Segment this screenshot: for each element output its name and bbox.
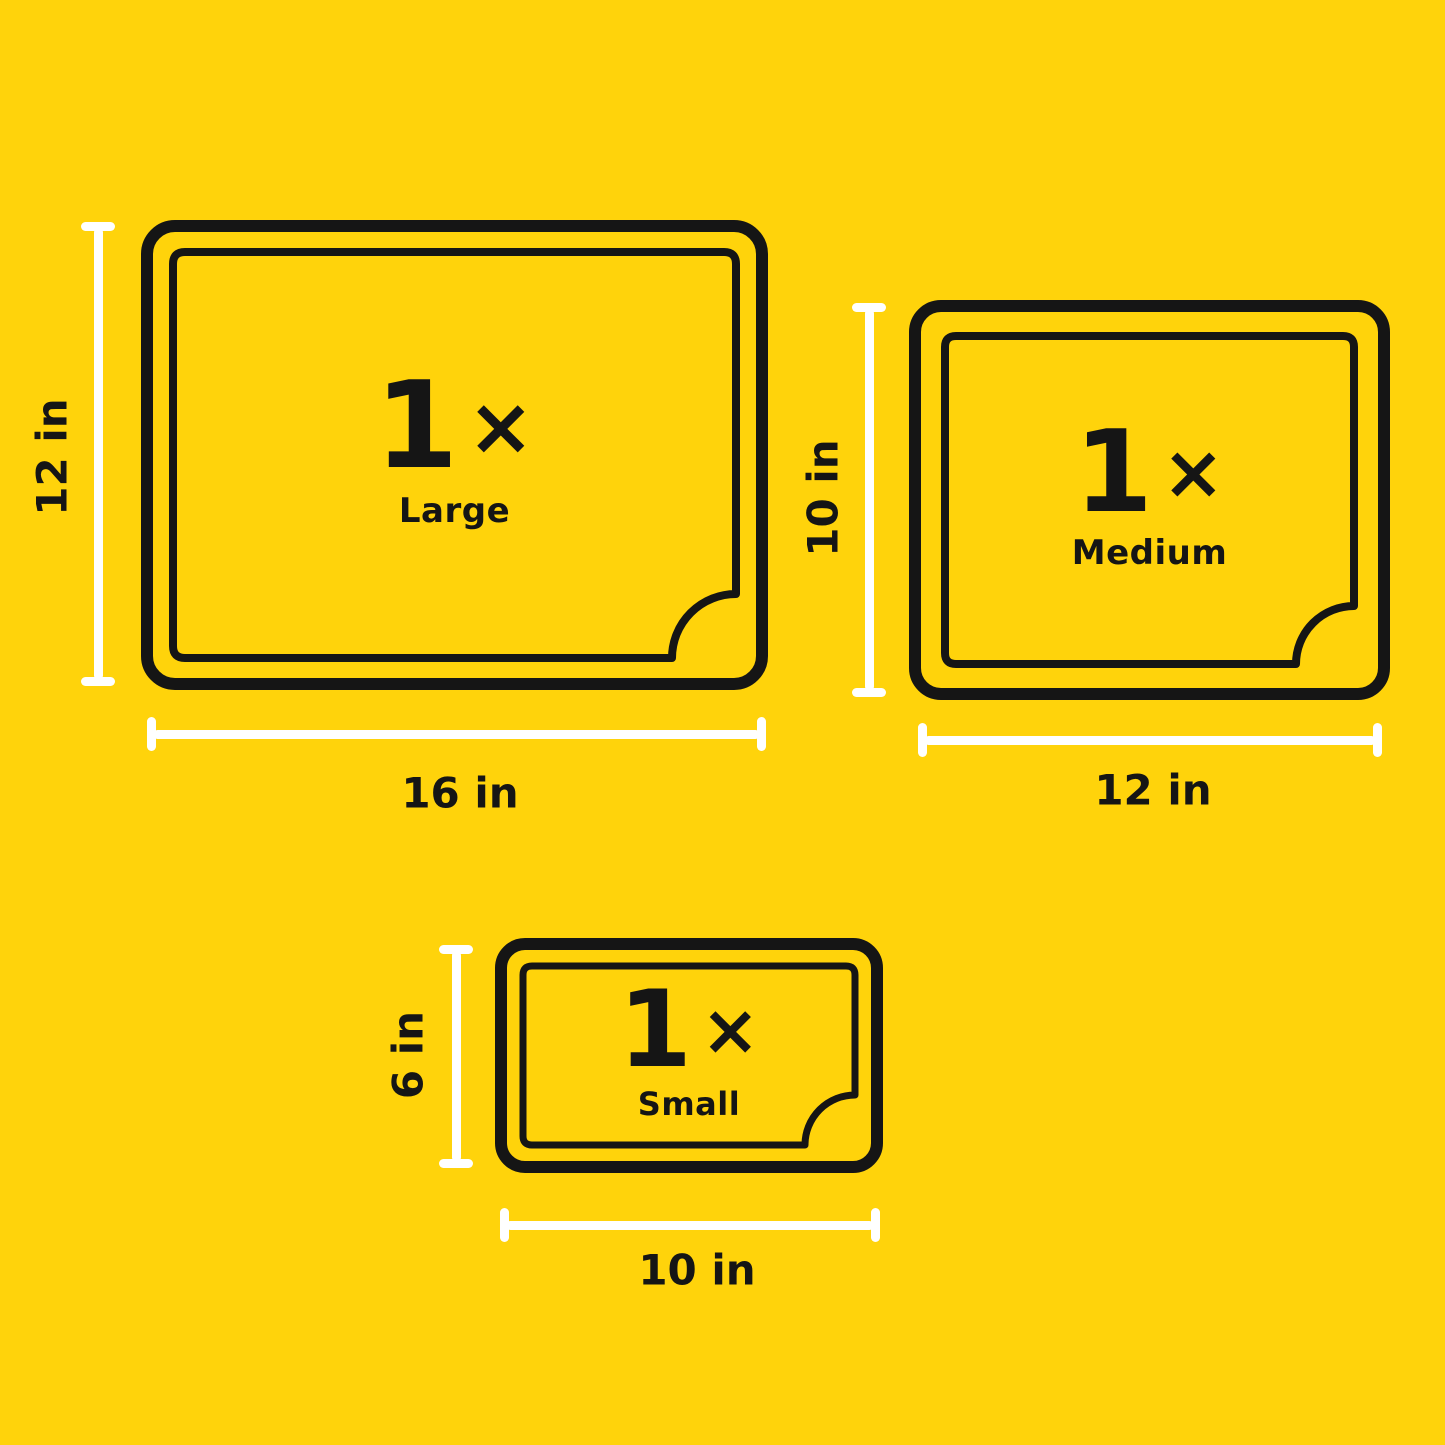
dimension-end-cap xyxy=(871,1208,880,1242)
dimension-bar xyxy=(865,309,874,691)
quantity-value: 1 xyxy=(1074,427,1153,517)
small-height-label: 6 in xyxy=(384,1011,433,1099)
medium-width-dimension-line xyxy=(918,723,1382,757)
dimension-bar xyxy=(153,730,760,739)
quantity-value: 1 xyxy=(618,988,692,1073)
dimension-end-cap xyxy=(852,688,886,697)
sheet-medium-text: 1 × Medium xyxy=(909,300,1390,700)
dimension-end-cap xyxy=(1373,723,1382,757)
dimension-end-cap xyxy=(757,717,766,751)
small-height-dimension-line xyxy=(439,945,473,1168)
sheet-large-quantity: 1 × xyxy=(375,379,535,475)
large-width-label: 16 in xyxy=(401,769,518,818)
medium-width-label: 12 in xyxy=(1094,766,1211,815)
dimension-bar xyxy=(452,951,461,1162)
sheet-large-size-label: Large xyxy=(399,491,510,531)
medium-height-dimension-line xyxy=(852,303,886,697)
dimension-end-cap xyxy=(81,677,115,686)
large-height-dimension-line xyxy=(81,222,115,686)
sheet-small-quantity: 1 × xyxy=(618,988,759,1073)
large-height-label: 12 in xyxy=(28,398,77,515)
dimension-end-cap xyxy=(439,1159,473,1168)
size-chart-infographic: 1 × Large 12 in 16 in 1 × Medium 10 in xyxy=(0,0,1445,1445)
large-width-dimension-line xyxy=(147,717,766,751)
sheet-small-size-label: Small xyxy=(638,1085,740,1123)
multiply-icon: × xyxy=(701,1002,760,1058)
small-width-dimension-line xyxy=(500,1208,880,1242)
sheet-large-text: 1 × Large xyxy=(141,220,768,690)
multiply-icon: × xyxy=(467,395,534,459)
multiply-icon: × xyxy=(1162,442,1225,502)
dimension-bar xyxy=(924,736,1376,745)
dimension-bar xyxy=(506,1221,874,1230)
sheet-medium-quantity: 1 × xyxy=(1074,427,1224,517)
sheet-medium-size-label: Medium xyxy=(1072,533,1228,573)
sheet-small-text: 1 × Small xyxy=(495,938,883,1173)
medium-height-label: 10 in xyxy=(799,439,848,556)
quantity-value: 1 xyxy=(375,379,459,475)
small-width-label: 10 in xyxy=(638,1246,755,1295)
dimension-bar xyxy=(94,228,103,680)
